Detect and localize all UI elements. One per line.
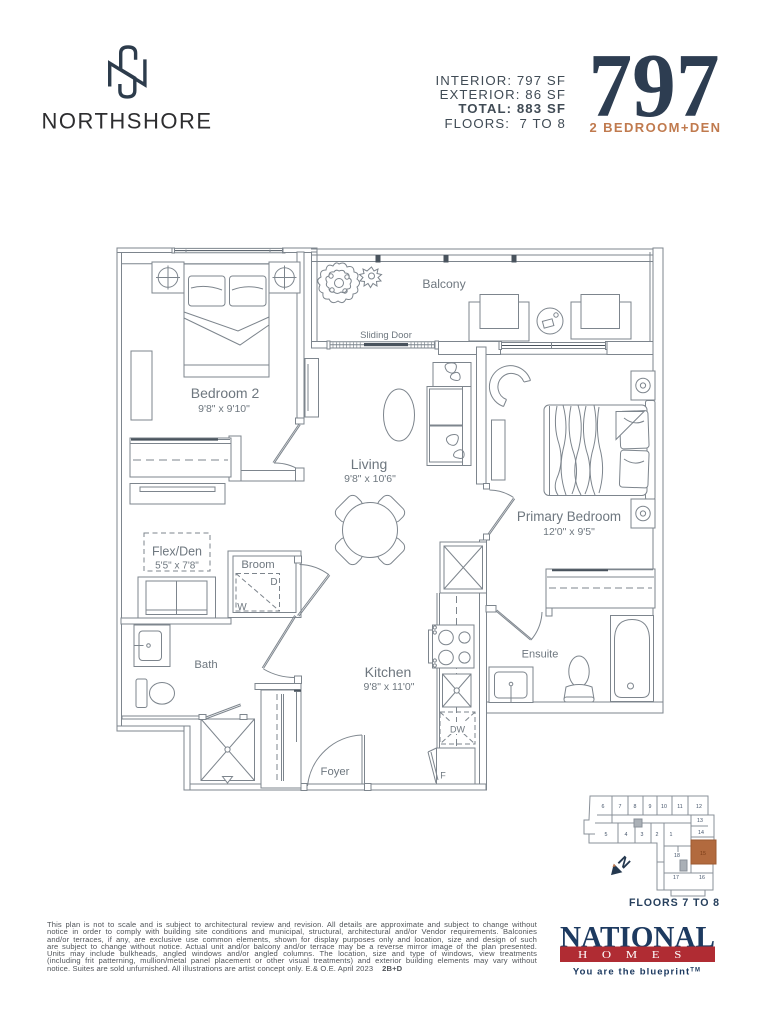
svg-text:5'5" x 7'8": 5'5" x 7'8": [155, 561, 199, 572]
svg-text:Living: Living: [351, 456, 388, 472]
svg-text:Balcony: Balcony: [422, 277, 466, 291]
svg-text:W: W: [237, 602, 247, 613]
svg-text:4: 4: [625, 832, 628, 838]
svg-text:Ensuite: Ensuite: [522, 649, 559, 661]
svg-text:8: 8: [634, 804, 637, 810]
svg-text:9'8" x 10'6": 9'8" x 10'6": [344, 473, 396, 485]
svg-text:3: 3: [641, 832, 644, 838]
svg-text:9: 9: [649, 804, 652, 810]
svg-text:6: 6: [602, 804, 605, 810]
svg-text:18: 18: [674, 853, 680, 859]
svg-text:HOMES: HOMES: [578, 950, 696, 961]
svg-text:Foyer: Foyer: [321, 766, 350, 778]
svg-text:You are the blueprintTM: You are the blueprintTM: [573, 967, 701, 978]
svg-text:Broom: Broom: [241, 559, 274, 571]
svg-text:12: 12: [696, 804, 702, 810]
svg-text:Flex/Den: Flex/Den: [152, 545, 202, 559]
svg-text:10: 10: [661, 804, 667, 810]
svg-text:Kitchen: Kitchen: [365, 664, 412, 680]
svg-text:16: 16: [699, 875, 705, 881]
svg-text:F: F: [440, 771, 446, 781]
svg-text:15: 15: [700, 851, 706, 857]
svg-text:11: 11: [677, 804, 683, 810]
svg-text:12'0" x 9'5": 12'0" x 9'5": [543, 526, 595, 538]
svg-text:17: 17: [673, 875, 679, 881]
svg-text:14: 14: [698, 830, 704, 836]
svg-text:5: 5: [605, 832, 608, 838]
svg-text:Bath: Bath: [194, 659, 217, 671]
svg-text:9'8" x 9'10": 9'8" x 9'10": [198, 403, 250, 415]
svg-text:Bedroom 2: Bedroom 2: [191, 385, 260, 401]
svg-text:Sliding Door: Sliding Door: [360, 330, 412, 341]
svg-text:7: 7: [619, 804, 622, 810]
svg-text:9'8" x 11'0": 9'8" x 11'0": [364, 681, 415, 693]
svg-text:Primary Bedroom: Primary Bedroom: [517, 509, 621, 524]
svg-text:D: D: [270, 577, 277, 588]
svg-text:DW: DW: [450, 725, 465, 735]
svg-text:2: 2: [656, 832, 659, 838]
svg-text:13: 13: [697, 818, 703, 824]
svg-text:1: 1: [670, 832, 673, 838]
